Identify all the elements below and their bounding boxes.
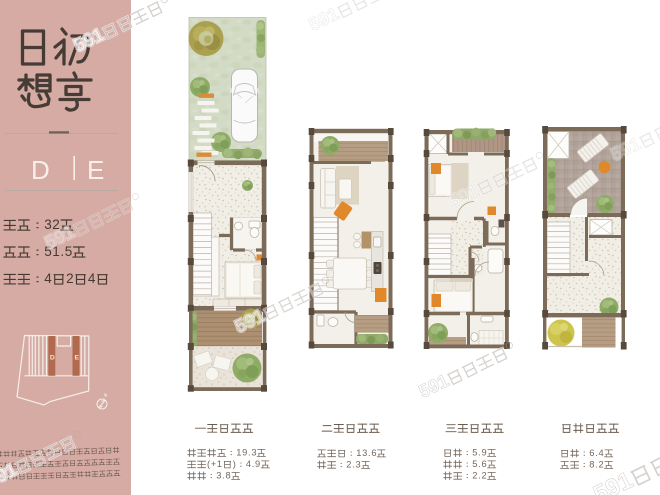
svg-text:5.9: 5.9 — [472, 448, 487, 458]
svg-text:): ) — [233, 459, 237, 469]
svg-text:2.3: 2.3 — [346, 460, 361, 470]
svg-text:D: D — [31, 155, 52, 185]
svg-text:(+1: (+1 — [207, 459, 223, 469]
svg-text:4: 4 — [88, 271, 96, 286]
svg-text:3.8: 3.8 — [216, 471, 231, 481]
svg-text:13.6: 13.6 — [356, 448, 377, 458]
svg-text:8.2: 8.2 — [589, 460, 604, 470]
svg-text:5.6: 5.6 — [472, 459, 487, 469]
svg-text:6.4: 6.4 — [589, 448, 604, 458]
svg-text:E: E — [75, 355, 80, 362]
svg-text:591: 591 — [589, 467, 637, 495]
svg-text:E: E — [87, 155, 106, 185]
svg-text:2.2: 2.2 — [472, 471, 487, 481]
svg-text:19.3: 19.3 — [236, 448, 257, 458]
svg-text:4.9: 4.9 — [246, 459, 261, 469]
svg-text:4: 4 — [44, 271, 52, 286]
svg-text:D: D — [50, 355, 55, 362]
svg-text:2: 2 — [66, 271, 74, 286]
